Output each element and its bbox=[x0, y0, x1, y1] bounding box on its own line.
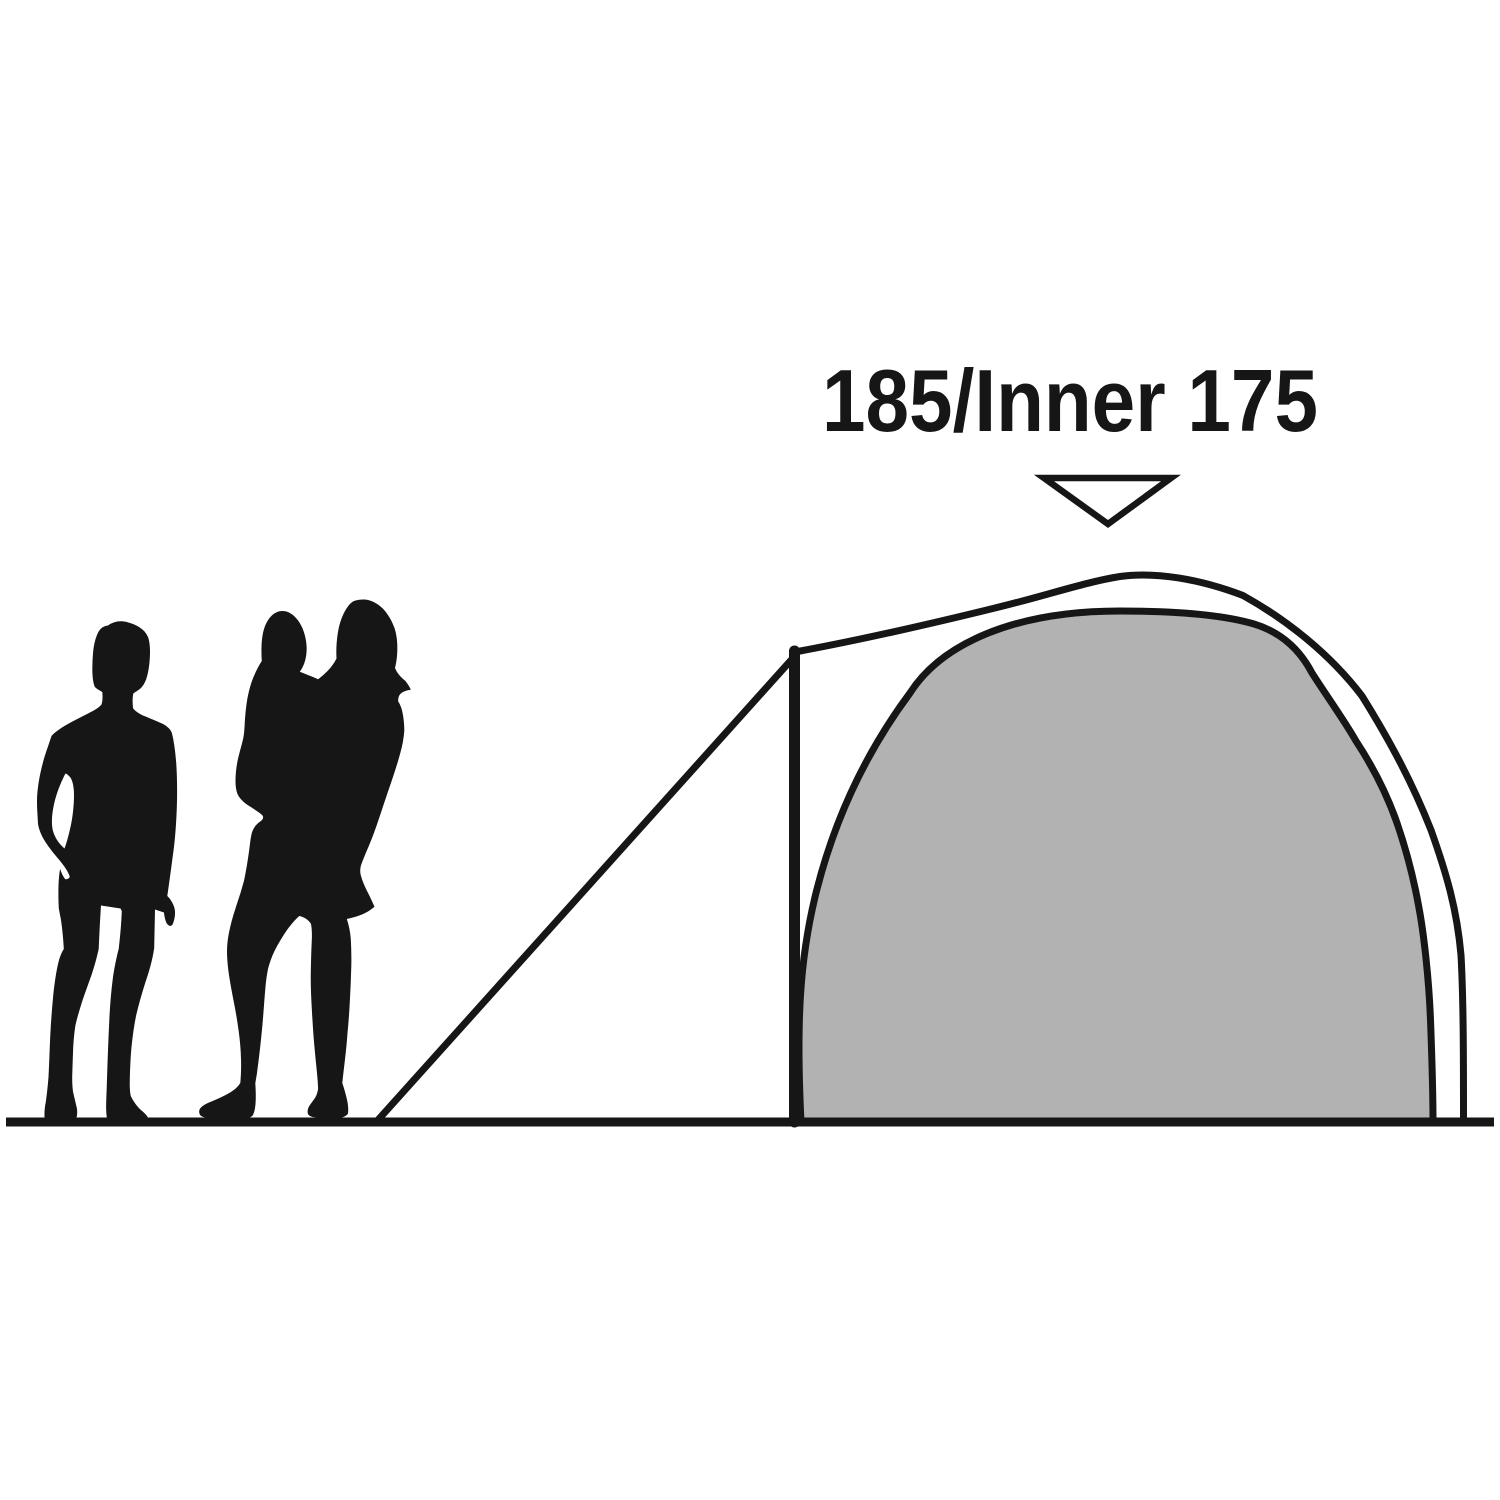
svg-text:185/Inner 175: 185/Inner 175 bbox=[822, 351, 1318, 450]
